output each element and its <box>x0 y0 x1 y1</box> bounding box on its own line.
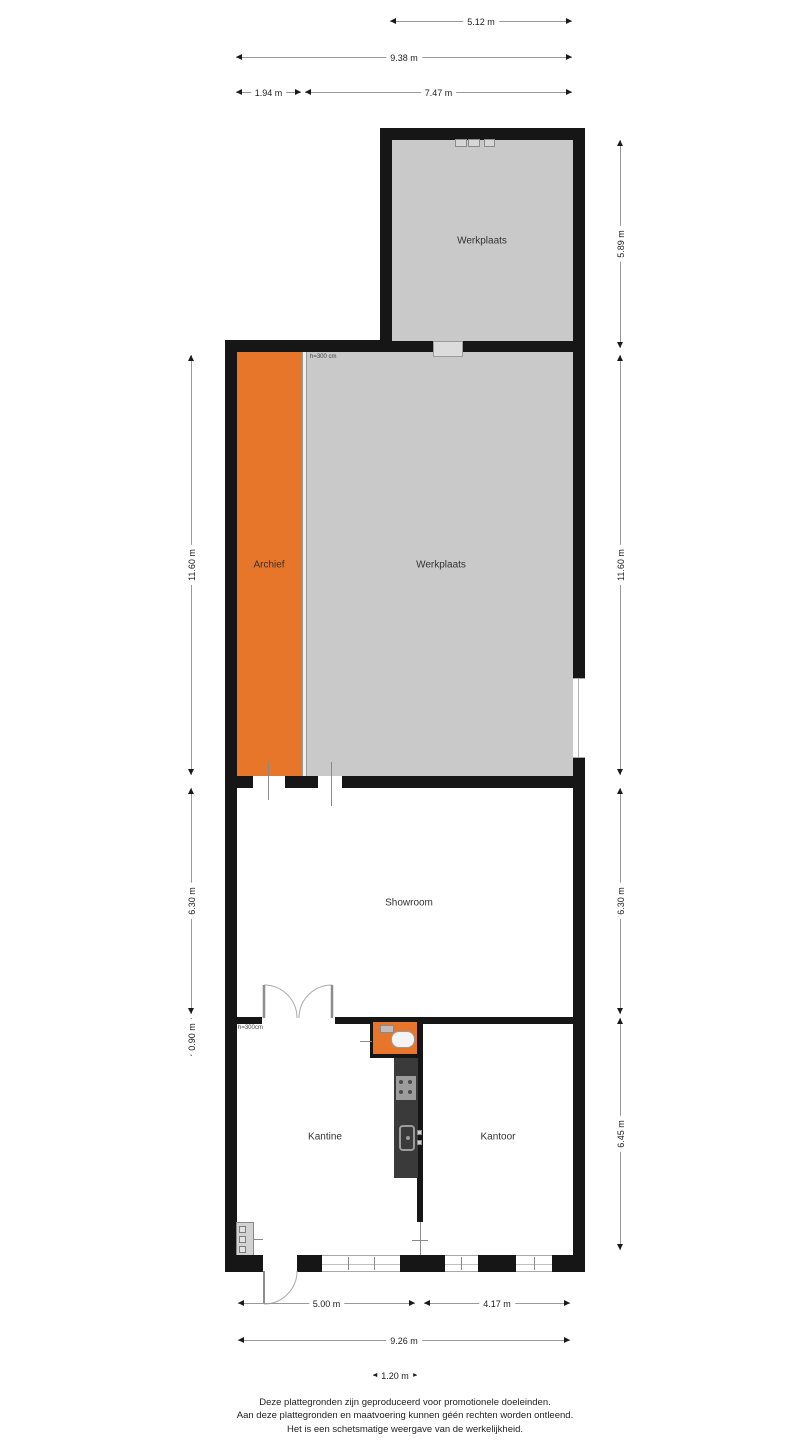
arrow-left-icon <box>236 54 242 60</box>
burner <box>408 1080 412 1084</box>
disclaimer-line-3: Het is een schetsmatige weergave van de … <box>0 1423 810 1436</box>
cabinet-shelf <box>239 1226 246 1233</box>
window-east <box>573 678 585 758</box>
arrow-down-icon <box>188 1008 194 1014</box>
dim-right-630: 6.30 m <box>616 788 625 1014</box>
window-glass-line <box>322 1264 400 1265</box>
wall-fixture <box>484 139 495 147</box>
label-kantoor: Kantoor <box>480 1132 515 1143</box>
cabinet-shelf <box>239 1236 246 1243</box>
arrow-down-icon <box>188 769 194 775</box>
dim-value: 11.60 m <box>187 545 197 585</box>
arrow-left-icon <box>238 1337 244 1343</box>
wall-fixture <box>455 139 467 147</box>
toilet <box>391 1031 415 1048</box>
dim-value: 6.45 m <box>616 1116 626 1152</box>
arrow-down-icon <box>617 769 623 775</box>
dim-value: 6.30 m <box>616 883 626 919</box>
kitchen-counter <box>394 1058 418 1178</box>
wall-kantine-kantoor-thin <box>420 1222 421 1255</box>
wall-showroom-south-a <box>237 1017 262 1024</box>
dim-right-1160: 11.60 m <box>616 355 625 775</box>
dim-bottom-120: 1.20 m <box>373 1371 417 1380</box>
dim-value: 9.38 m <box>386 53 422 63</box>
wall-south-a <box>225 1255 263 1272</box>
wall-south-e <box>552 1255 585 1272</box>
dim-bottom-926: 9.26 m <box>238 1336 570 1345</box>
dim-bottom-417: 4.17 m <box>424 1299 570 1308</box>
disclaimer-line-1: Deze plattegronden zijn geproduceerd voo… <box>0 1396 810 1409</box>
window-south-1 <box>322 1255 400 1272</box>
dim-top-938: 9.38 m <box>236 53 572 62</box>
disclaimer: Deze plattegronden zijn geproduceerd voo… <box>0 1396 810 1436</box>
arrow-up-icon <box>617 140 623 146</box>
label-kantine: Kantine <box>308 1132 342 1143</box>
arrow-right-icon <box>409 1300 415 1306</box>
height-note-werkplaats: h=300 cm <box>310 354 337 360</box>
door-line-kantoor <box>412 1240 428 1241</box>
wall-main-west <box>225 340 237 1272</box>
arrow-up-icon <box>188 355 194 361</box>
dim-right-589: 5.89 m <box>616 140 625 348</box>
burner <box>399 1090 403 1094</box>
wall-top-building-west <box>380 128 392 352</box>
arrow-left-icon <box>424 1300 430 1306</box>
arrow-down-icon <box>617 342 623 348</box>
dim-value: 6.30 m <box>187 883 197 919</box>
window-tick <box>461 1257 462 1270</box>
window-tick <box>374 1257 375 1270</box>
dim-top-747: 7.47 m <box>305 88 572 97</box>
dim-value: 11.60 m <box>616 545 626 585</box>
dim-left-1160: 11.60 m <box>187 355 196 775</box>
toilet-sink <box>380 1025 394 1033</box>
wall-top-building-north <box>380 128 585 140</box>
arrow-left-icon <box>236 89 242 95</box>
arrow-up-icon <box>617 1018 623 1024</box>
arrow-up-icon <box>617 788 623 794</box>
dim-value: 9.26 m <box>386 1336 422 1346</box>
arrow-left-icon <box>390 18 396 24</box>
wall-south-c <box>400 1255 445 1272</box>
door-line-werkplaats <box>331 762 332 806</box>
burner <box>399 1080 403 1084</box>
passage-between-werkplaats <box>433 341 463 357</box>
wall-werkplaats-showroom-a <box>237 776 253 788</box>
wall-main-east-lower <box>573 758 585 1272</box>
arrow-left-icon <box>305 89 311 95</box>
arrow-down-icon <box>617 1008 623 1014</box>
burner <box>408 1090 412 1094</box>
wall-south-d <box>478 1255 516 1272</box>
dim-bottom-500: 5.00 m <box>238 1299 415 1308</box>
window-tick <box>534 1257 535 1270</box>
arrow-left-icon <box>238 1300 244 1306</box>
wall-south-b <box>297 1255 322 1272</box>
dim-left-090: 0.90 m <box>187 1018 196 1056</box>
dim-value: 5.00 m <box>309 1299 345 1309</box>
kitchen-sink <box>399 1125 415 1151</box>
dim-top-512: 5.12 m <box>390 17 572 26</box>
sink-handle <box>417 1130 422 1135</box>
faucet <box>406 1136 410 1140</box>
cabinet-shelf <box>239 1246 246 1253</box>
dim-value: 5.12 m <box>463 17 499 27</box>
dim-value: 7.47 m <box>421 88 457 98</box>
label-showroom: Showroom <box>385 898 433 909</box>
arrow-right-icon <box>295 89 301 95</box>
dim-value: 1.20 m <box>377 1371 413 1381</box>
door-line-archief <box>268 762 269 800</box>
wall-fixture <box>468 139 480 147</box>
label-werkplaats-main: Werkplaats <box>416 560 466 571</box>
label-werkplaats-top: Werkplaats <box>457 236 507 247</box>
sink-handle <box>417 1140 422 1145</box>
arrow-right-icon <box>564 1300 570 1306</box>
dim-top-194: 1.94 m <box>236 88 301 97</box>
toilet-door-line <box>360 1041 372 1042</box>
dim-left-630: 6.30 m <box>187 788 196 1014</box>
cabinet <box>236 1222 254 1256</box>
dim-value: 0.90 m <box>187 1019 197 1055</box>
arrow-right-icon <box>566 54 572 60</box>
window-glass-line <box>578 679 579 757</box>
arrow-up-icon <box>188 788 194 794</box>
dim-value: 1.94 m <box>251 88 287 98</box>
arrow-up-icon <box>617 355 623 361</box>
height-note-kantine: h=300cm <box>238 1025 263 1031</box>
dim-value: 4.17 m <box>479 1299 515 1309</box>
floorplan-canvas: Werkplaats Archief Werkplaats Showroom K… <box>0 0 810 1440</box>
wall-main-north <box>225 340 392 352</box>
arrow-right-icon <box>566 18 572 24</box>
window-tick <box>348 1257 349 1270</box>
disclaimer-line-2: Aan deze plattegronden en maatvoering ku… <box>0 1409 810 1422</box>
arrow-right-icon <box>566 89 572 95</box>
wall-main-east-upper <box>573 352 585 678</box>
dim-value: 5.89 m <box>616 226 626 262</box>
label-archief: Archief <box>253 560 284 571</box>
wall-top-building-east <box>573 128 585 352</box>
cooktop <box>396 1076 416 1100</box>
dim-right-645: 6.45 m <box>616 1018 625 1250</box>
double-door <box>261 984 335 1019</box>
cabinet-door-line <box>254 1239 263 1240</box>
arrow-down-icon <box>617 1244 623 1250</box>
arrow-right-icon <box>564 1337 570 1343</box>
wall-werkplaats-showroom-c <box>342 776 573 788</box>
wall-top-building-south <box>380 341 585 352</box>
wall-werkplaats-showroom-b <box>285 776 318 788</box>
